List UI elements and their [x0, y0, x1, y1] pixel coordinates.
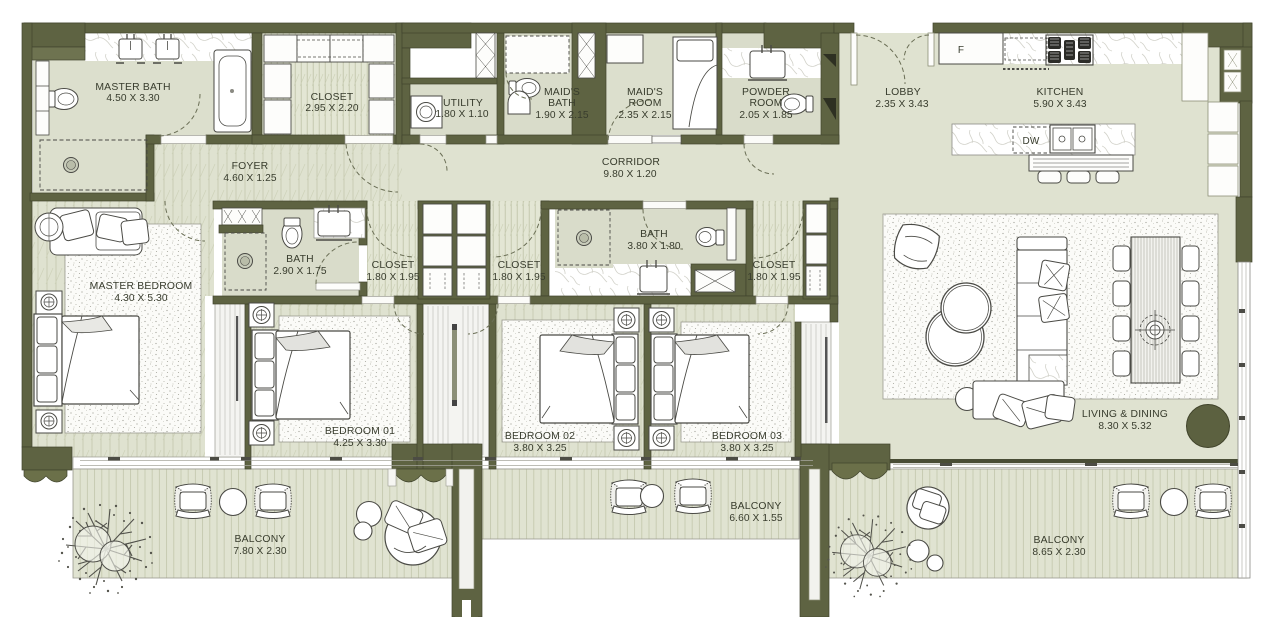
svg-text:3.80 X 1.80: 3.80 X 1.80: [627, 241, 680, 252]
svg-text:4.30 X 5.30: 4.30 X 5.30: [114, 293, 167, 304]
svg-text:5.90 X 3.43: 5.90 X 3.43: [1033, 99, 1086, 110]
svg-text:2.05 X 1.85: 2.05 X 1.85: [739, 110, 792, 121]
svg-text:BEDROOM 01: BEDROOM 01: [325, 426, 395, 437]
svg-text:BATH: BATH: [548, 98, 576, 109]
svg-text:4.60 X 1.25: 4.60 X 1.25: [223, 173, 276, 184]
svg-text:ROOM: ROOM: [628, 98, 661, 109]
svg-text:MAID'S: MAID'S: [544, 87, 580, 98]
svg-text:LIVING & DINING: LIVING & DINING: [1082, 409, 1168, 420]
svg-text:LOBBY: LOBBY: [885, 87, 921, 98]
svg-text:KITCHEN: KITCHEN: [1036, 87, 1083, 98]
svg-text:2.35 X 3.43: 2.35 X 3.43: [875, 99, 928, 110]
svg-text:4.50 X 3.30: 4.50 X 3.30: [106, 93, 159, 104]
svg-text:UTILITY: UTILITY: [443, 98, 483, 109]
svg-text:3.80 X 3.25: 3.80 X 3.25: [720, 443, 773, 454]
svg-text:F: F: [958, 45, 964, 56]
svg-text:8.30 X 5.32: 8.30 X 5.32: [1098, 421, 1151, 432]
svg-text:1.80 X 1.95: 1.80 X 1.95: [747, 272, 800, 283]
svg-text:POWDER: POWDER: [742, 87, 790, 98]
svg-text:2.35 X 2.15: 2.35 X 2.15: [618, 110, 671, 121]
svg-text:CORRIDOR: CORRIDOR: [602, 157, 660, 168]
svg-text:1.80 X 1.95: 1.80 X 1.95: [492, 272, 545, 283]
svg-text:CLOSET: CLOSET: [311, 92, 354, 103]
svg-text:3.80 X 3.25: 3.80 X 3.25: [513, 443, 566, 454]
svg-text:FOYER: FOYER: [232, 161, 269, 172]
svg-text:BALCONY: BALCONY: [730, 501, 781, 512]
svg-text:MAID'S: MAID'S: [627, 87, 663, 98]
svg-text:8.65 X 2.30: 8.65 X 2.30: [1032, 547, 1085, 558]
svg-text:2.95 X 2.20: 2.95 X 2.20: [305, 103, 358, 114]
svg-text:BATH: BATH: [286, 254, 314, 265]
svg-text:6.60 X 1.55: 6.60 X 1.55: [729, 513, 782, 524]
svg-text:MASTER BEDROOM: MASTER BEDROOM: [90, 281, 193, 292]
svg-text:4.25 X 3.30: 4.25 X 3.30: [333, 438, 386, 449]
svg-text:2.90 X 1.75: 2.90 X 1.75: [273, 266, 326, 277]
svg-text:BATH: BATH: [640, 229, 668, 240]
svg-text:7.80 X 2.30: 7.80 X 2.30: [233, 546, 286, 557]
svg-text:CLOSET: CLOSET: [498, 260, 541, 271]
svg-text:1.80 X 1.10: 1.80 X 1.10: [435, 109, 488, 120]
svg-text:CLOSET: CLOSET: [372, 260, 415, 271]
svg-text:BEDROOM 03: BEDROOM 03: [712, 431, 782, 442]
svg-text:DW: DW: [1022, 136, 1039, 147]
svg-text:CLOSET: CLOSET: [753, 260, 796, 271]
svg-text:MASTER BATH: MASTER BATH: [95, 82, 170, 93]
svg-text:9.80 X 1.20: 9.80 X 1.20: [603, 169, 656, 180]
svg-text:BEDROOM 02: BEDROOM 02: [505, 431, 575, 442]
svg-text:1.90 X 2.15: 1.90 X 2.15: [535, 110, 588, 121]
svg-text:ROOM: ROOM: [749, 98, 782, 109]
svg-text:1.80 X 1.95: 1.80 X 1.95: [366, 272, 419, 283]
svg-text:BALCONY: BALCONY: [1033, 535, 1084, 546]
svg-text:BALCONY: BALCONY: [234, 534, 285, 545]
